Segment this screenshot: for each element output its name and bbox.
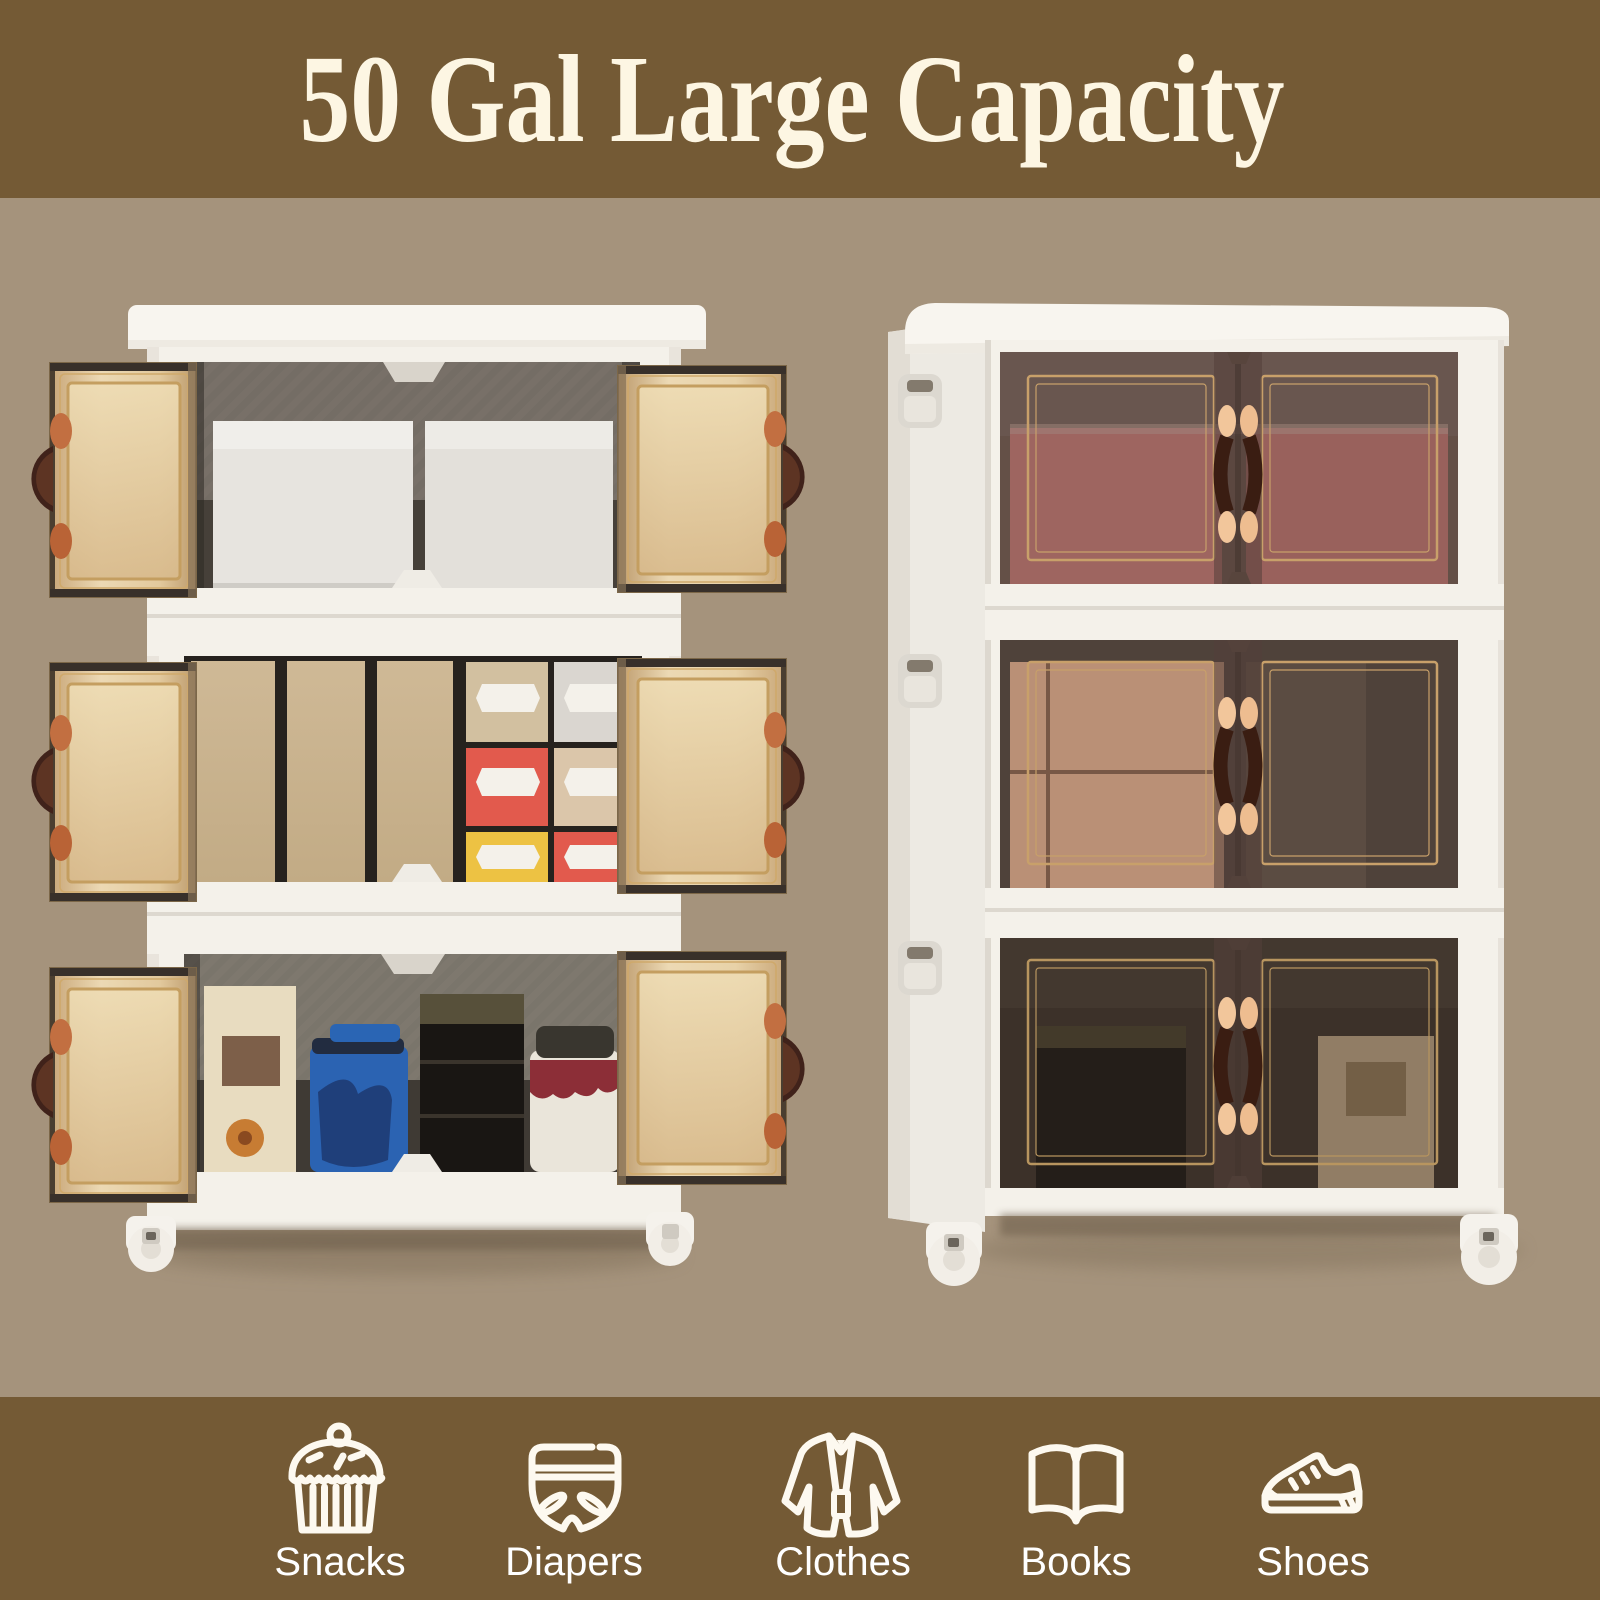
svg-text:Snacks: Snacks	[274, 1540, 405, 1584]
svg-text:Shoes: Shoes	[1256, 1540, 1369, 1584]
svg-text:Clothes: Clothes	[775, 1540, 911, 1584]
svg-text:Books: Books	[1020, 1540, 1131, 1584]
svg-text:Diapers: Diapers	[505, 1540, 643, 1584]
svg-text:50 Gal Large Capacity: 50 Gal Large Capacity	[300, 31, 1285, 169]
